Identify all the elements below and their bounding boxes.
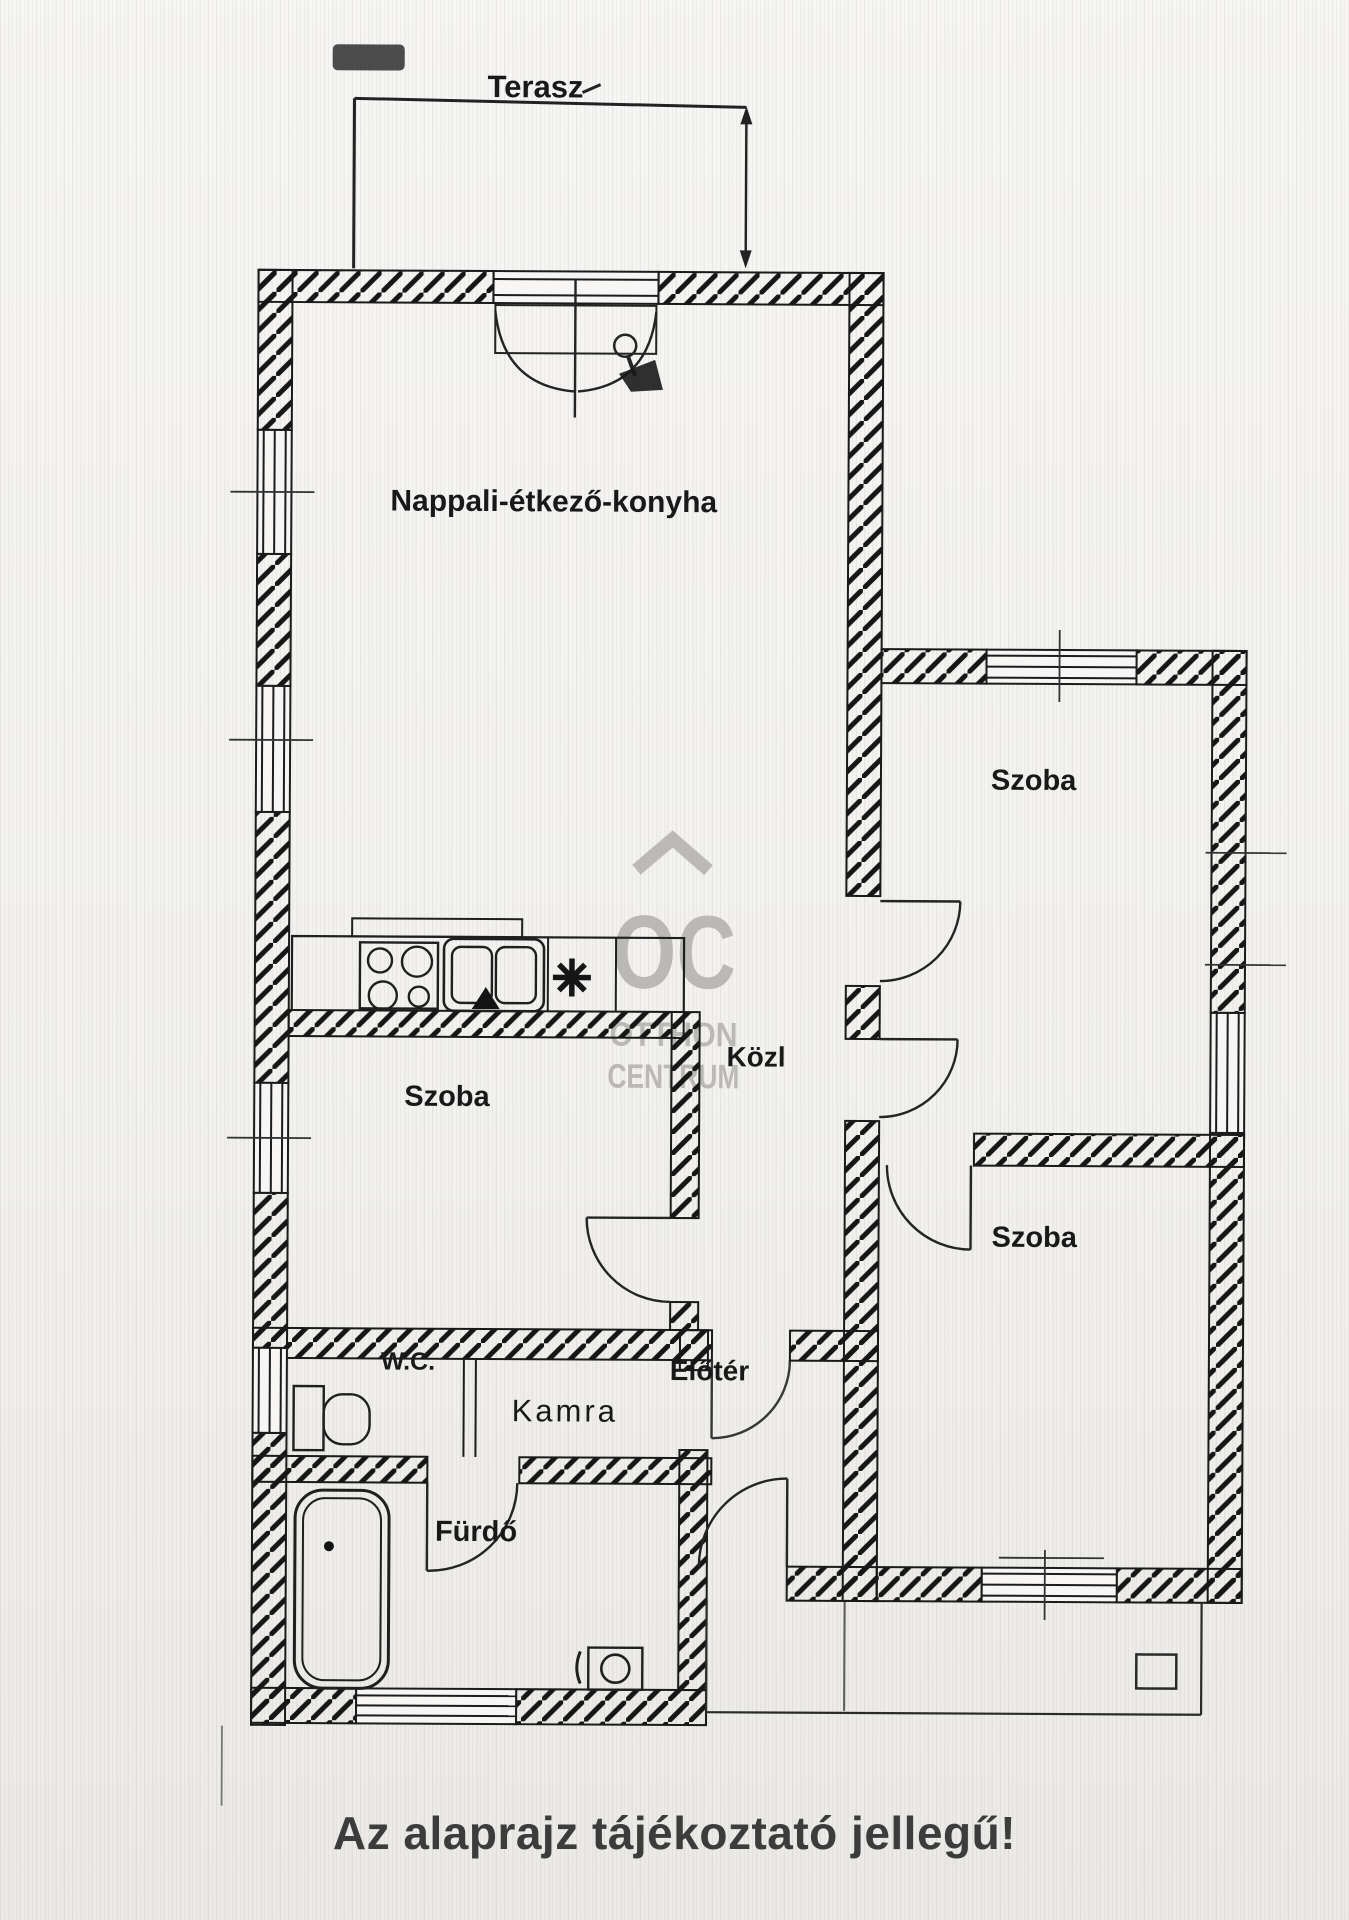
room-label-furdo: Fürdő (435, 1516, 517, 1548)
room-label-szoba-jobb-felso: Szoba (991, 765, 1077, 797)
window-wing-top (986, 650, 1136, 685)
room-label-szoba-bal: Szoba (404, 1081, 490, 1113)
door-nappali-szoba (880, 901, 960, 981)
porch-outline (706, 1600, 1202, 1715)
disclaimer-caption: Az alaprajz tájékoztató jellegű! (0, 1806, 1349, 1860)
room-label-wc: W.C. (381, 1347, 435, 1375)
window-left-2 (256, 686, 291, 812)
door-kozl-szoba (879, 1039, 957, 1117)
scanned-floor-plan-page: { "caption": { "text": "Az alaprajz tájé… (0, 0, 1349, 1920)
window-wing-right (1210, 1013, 1245, 1133)
toilet-fixture (293, 1386, 369, 1450)
boiler-star-icon (553, 958, 591, 996)
window-bath-bottom (356, 1688, 516, 1724)
door-szoba-also (886, 1165, 970, 1249)
room-label-nappali: Nappali-étkező-konyha (390, 485, 717, 520)
watermark-roof-icon (636, 839, 708, 870)
door-szoba-bal (586, 1218, 670, 1302)
scan-smudge-artifact (333, 44, 405, 70)
room-label-kozlekedo: Közl (726, 1041, 785, 1072)
room-label-szoba-jobb-also: Szoba (991, 1222, 1077, 1254)
washer-fixture (577, 1648, 643, 1690)
sink-fixture (444, 939, 544, 1012)
window-left-wc (253, 1348, 287, 1433)
door-front-entrance (699, 1478, 787, 1566)
room-label-terasz: Terasz (487, 69, 583, 105)
room-label-kamra: Kamra (512, 1393, 618, 1429)
watermark-initials: OC (612, 895, 737, 1012)
bathtub-fixture (294, 1490, 389, 1688)
partition-wc-kamra (463, 1359, 476, 1457)
floor-plan-drawing: OC OTTHON CENTRUM (0, 0, 1349, 1920)
window-wing-bottom (982, 1568, 1117, 1603)
room-label-eloter: Előtér (670, 1355, 750, 1386)
stove-fixture (360, 942, 438, 1009)
